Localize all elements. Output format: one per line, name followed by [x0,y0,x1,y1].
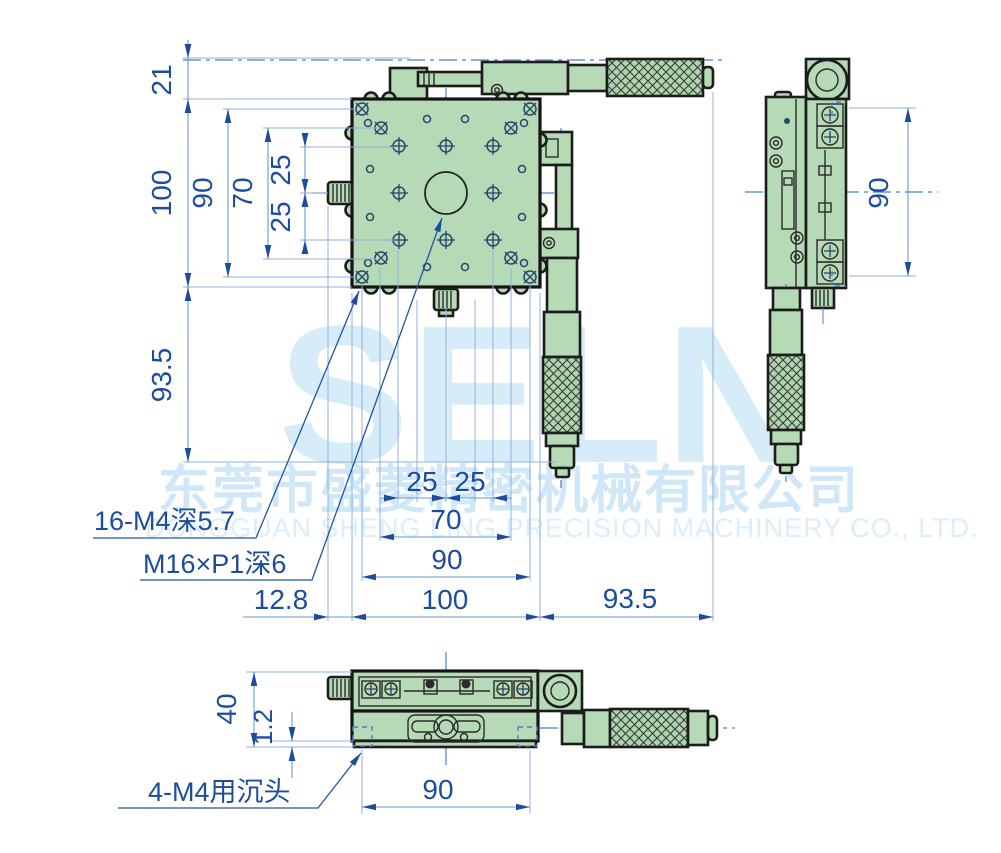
dim-col-q2-label: 25 [454,466,485,497]
bottom-knob [328,677,352,699]
bottom-top-slab [352,671,538,711]
dim-knob-offset-label: 12.8 [254,584,309,615]
dim-mic-length-label: 93.5 [603,583,658,614]
side-top-knob [806,59,849,100]
dim-row-q2-label: 25 [265,201,296,232]
dim-height-label: 100 [146,170,177,217]
dim-depth-label: 93.5 [146,348,177,403]
bottom-micrometer [562,709,717,747]
annotation-m4-thread: 16-M4深5.7 [94,506,235,536]
x-micrometer [390,59,713,99]
technical-drawing-canvas: SELN 东莞市盛菱精密机械有限公司 DONGGUAN SHENG LING P… [0,0,1001,853]
dim-cols-inner-label: 70 [430,504,461,535]
bottom-view: 40 1.2 90 4-M4用沉头 [118,652,735,814]
dim-cols-outer-label: 90 [431,544,462,575]
bottom-base-slab [352,711,538,747]
watermark-company-en: DONGGUAN SHENG LING PRECISION MACHINERY … [145,513,979,543]
bottom-mic-block [538,671,582,711]
dim-lip-label: 1.2 [248,709,278,745]
dim-top-offset-label: 21 [146,64,177,95]
side-view: 90 [745,59,938,482]
dim-base-span-label: 90 [422,774,453,805]
side-body [766,92,846,288]
annotation-counterbore: 4-M4用沉头 [148,777,291,807]
dim-row-q1-label: 25 [265,154,296,185]
dim-rows-outer-label: 90 [187,177,218,208]
dim-rows-inner-label: 70 [227,177,258,208]
dim-col-q1-label: 25 [406,466,437,497]
xy-stage-drawing: SELN 东莞市盛菱精密机械有限公司 DONGGUAN SHENG LING P… [0,0,1001,853]
x-clamp-knob [328,182,352,204]
annotation-m16-thread: M16×P1深6 [143,549,286,579]
dim-side-height-label: 90 [863,177,894,208]
dim-width-label: 100 [422,584,469,615]
dim-base-height-label: 40 [211,693,242,724]
watermark-company-cn: 东莞市盛菱精密机械有限公司 [158,462,860,520]
